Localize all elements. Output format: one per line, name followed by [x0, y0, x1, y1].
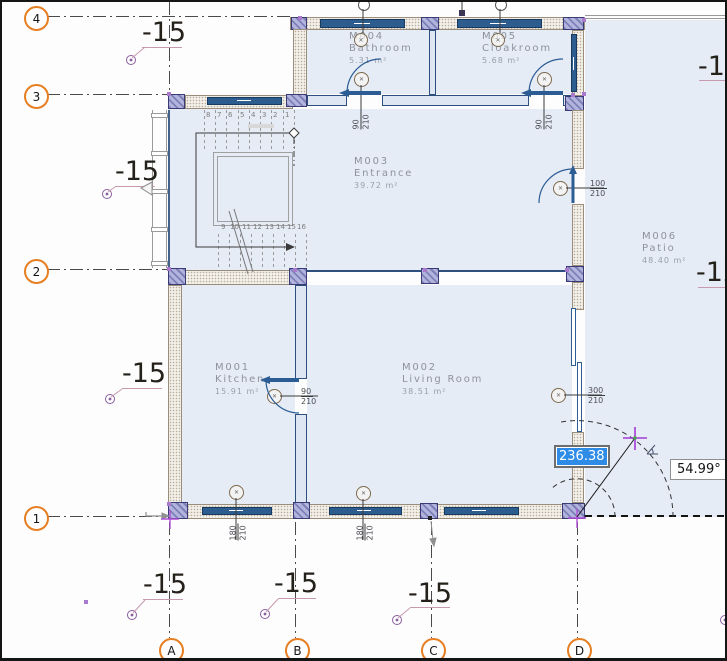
stair-number: 14	[276, 223, 285, 231]
column-b2	[289, 268, 307, 285]
room-area: 5.31 m²	[349, 55, 413, 67]
stair-number: 10	[230, 223, 239, 231]
slider-door-panel-1	[571, 308, 576, 366]
column-mid4	[421, 17, 439, 30]
wall-d-living-upper	[572, 282, 584, 310]
window-bottom-3	[444, 507, 519, 515]
slider-door-panel-2	[577, 362, 582, 432]
stair-tread	[273, 234, 274, 270]
window-entrance-north	[207, 97, 282, 105]
grip-handle	[84, 600, 88, 604]
window-d-cloak	[571, 34, 577, 92]
stair-number: 4	[251, 111, 255, 119]
room-area: 38.51 m²	[402, 386, 483, 398]
elevation-label[interactable]: -15	[115, 159, 159, 185]
stair-note	[248, 124, 274, 128]
grip-handle	[167, 92, 171, 96]
room-tag-bubble-cloakroom[interactable]	[495, 0, 507, 11]
elevation-label[interactable]: -15	[408, 581, 452, 607]
grip-handle	[167, 502, 171, 506]
stair-number: 7	[217, 111, 221, 119]
elevation-underline	[410, 607, 450, 608]
stair-tread	[295, 234, 296, 270]
stair-tread	[306, 234, 307, 270]
elevation-underline	[142, 47, 182, 48]
drawing-viewport[interactable]: 8 7 6 5 4 3 2 1 9 10 11 12 13 14 15 16 M…	[0, 0, 727, 661]
stair-number: 15	[287, 223, 296, 231]
annotation-window-1: 180210	[229, 513, 248, 541]
window-glass-line	[229, 510, 243, 511]
elevation-label[interactable]: -15	[143, 572, 187, 598]
room-id: M003	[354, 156, 413, 168]
window-glass-line	[237, 100, 251, 101]
gridline-row-1	[47, 516, 168, 517]
elevation-marker-icon	[260, 609, 270, 619]
stair-tread	[271, 110, 272, 150]
curtain-mullion	[151, 261, 168, 266]
room-tag-bubble-bathroom[interactable]	[358, 0, 370, 11]
grid-bubble-row-4[interactable]: 4	[24, 6, 49, 31]
dimension-input[interactable]: 236.38	[554, 445, 610, 468]
grid-bubble-row-2[interactable]: 2	[24, 259, 49, 284]
junction-marker	[428, 516, 432, 520]
elevation-underline	[115, 186, 155, 187]
elevation-marker-icon	[720, 615, 727, 625]
grip-handle	[582, 92, 586, 96]
elevation-marker-icon	[126, 55, 136, 65]
grip-handle	[167, 267, 171, 271]
room-label-kitchen[interactable]: M001 Kitchen 15.91 m²	[215, 362, 265, 398]
room-area: 48.40 m²	[642, 255, 686, 267]
window-glass-line	[354, 23, 370, 24]
stair-tread	[249, 110, 250, 150]
door-tag-icon-kitchen[interactable]: ✕	[267, 389, 282, 404]
annotation-kitchen-door: 90210	[301, 387, 316, 406]
dimension-input-value: 236.38	[557, 448, 607, 465]
grip-handle	[571, 93, 575, 97]
column-d4	[563, 17, 584, 30]
wall-row2-ab	[174, 270, 293, 285]
room-id: M002	[402, 362, 483, 374]
column-a1	[168, 502, 188, 519]
grid-bubble-col-c[interactable]: C	[421, 638, 446, 661]
elevation-label[interactable]: -15	[142, 20, 186, 46]
window-glass-line	[357, 510, 371, 511]
wall-d-entrance-upper	[572, 110, 584, 169]
stair-tread	[218, 234, 219, 270]
wall-kitchen-living-upper	[295, 285, 307, 379]
wall-d-entrance-lower	[572, 204, 584, 266]
room-name: Kitchen	[215, 374, 265, 386]
stair-tread	[294, 110, 295, 150]
room-area: 39.72 m²	[354, 180, 413, 192]
column-b1	[293, 502, 310, 519]
stair-tread	[215, 110, 216, 150]
elevation-marker-icon	[105, 394, 115, 404]
elevation-marker-icon	[392, 615, 402, 625]
room-area: 5.68 m²	[482, 55, 552, 67]
grip-handle	[423, 268, 427, 272]
stair-tread	[283, 110, 284, 150]
elevation-marker-icon	[102, 189, 112, 199]
annotation-patio-door: 100210	[590, 179, 607, 198]
stair-number: 13	[265, 223, 274, 231]
window-tag-icon-2[interactable]: ✕	[356, 486, 371, 501]
stair-number: 11	[242, 223, 251, 231]
wall-kitchen-living-lower	[295, 414, 307, 504]
patio-bottom-edge	[585, 515, 727, 517]
elevation-underline	[698, 287, 727, 288]
room-id: M001	[215, 362, 265, 374]
gridline-row-2	[47, 269, 170, 270]
elevation-marker-icon	[127, 610, 137, 620]
grip-handle	[565, 268, 569, 272]
stair-tread	[251, 234, 252, 270]
grip-handle	[582, 18, 586, 22]
stair-landing-inner	[217, 156, 289, 222]
stair-tread	[260, 110, 261, 150]
patio-top-edge2	[585, 18, 727, 19]
stair-number: 3	[262, 111, 266, 119]
stair-number: 12	[253, 223, 262, 231]
grid-bubble-col-a[interactable]: A	[159, 638, 184, 661]
gridline-col-d-bottom	[577, 522, 578, 638]
room-name: Entrance	[354, 168, 413, 180]
gridline-row-3	[47, 94, 168, 95]
room-name: Patio	[642, 243, 686, 255]
grid-bubble-col-b[interactable]: B	[285, 638, 310, 661]
room-label-entrance[interactable]: M003 Entrance 39.72 m²	[354, 156, 413, 192]
wall-left-edge	[168, 110, 170, 269]
stair-number: 1	[285, 111, 289, 119]
junction-marker	[459, 10, 465, 16]
wall-row3-seg1	[307, 95, 347, 106]
stair-number: 2	[273, 111, 277, 119]
door-tag-icon-cloakroom[interactable]: ✕	[537, 72, 552, 87]
elevation-label[interactable]: -13	[698, 54, 727, 80]
annotation-cloakroom-door: 90210	[535, 104, 554, 130]
grid-bubble-row-3[interactable]: 3	[24, 84, 49, 109]
wall-row3-seg2	[382, 95, 529, 106]
curtain-mullion	[151, 189, 168, 194]
elevation-label[interactable]: -15	[274, 571, 318, 597]
wall-left-lower	[168, 285, 182, 504]
window-glass-line	[490, 23, 506, 24]
stair-tread	[229, 234, 230, 270]
room-id: M006	[642, 231, 686, 243]
curtain-mullion	[151, 227, 168, 232]
column-b3	[286, 94, 307, 107]
patio-top-edge	[585, 15, 727, 16]
door-tag-icon-bathroom[interactable]: ✕	[354, 72, 369, 87]
elevation-underline	[143, 599, 183, 600]
wall-bath-cloak-divider	[429, 30, 436, 95]
room-tag-anchor-icon[interactable]: ✕	[354, 33, 368, 47]
grid-bubble-row-1[interactable]: 1	[24, 506, 49, 531]
window-tag-icon-1[interactable]: ✕	[229, 485, 244, 500]
door-tag-icon-living[interactable]: ✕	[551, 388, 566, 403]
stair-number: 16	[297, 223, 306, 231]
stair-tread	[226, 110, 227, 150]
elevation-label[interactable]: -12	[696, 260, 727, 286]
column-d1	[562, 503, 585, 519]
stair-number: 8	[206, 111, 210, 119]
stair-tread	[284, 234, 285, 270]
room-area: 15.91 m²	[215, 386, 265, 398]
room-name: Living Room	[402, 374, 483, 386]
stair-tread	[240, 234, 241, 270]
column-d3	[565, 96, 584, 111]
door-tag-icon-patio[interactable]: ✕	[553, 181, 568, 196]
window-glass-line	[472, 510, 486, 511]
room-label-patio[interactable]: M006 Patio 48.40 m²	[642, 231, 686, 267]
curtain-mullion	[151, 113, 168, 118]
room-label-living[interactable]: M002 Living Room 38.51 m²	[402, 362, 483, 398]
wall-bathroom-west	[293, 29, 307, 95]
stair-tread	[238, 110, 239, 150]
stair-tread	[262, 234, 263, 270]
stair-number: 9	[221, 223, 225, 231]
annotation-bathroom-door: 90210	[352, 104, 371, 130]
stair-tread	[204, 110, 205, 150]
elevation-label[interactable]: -15	[122, 361, 166, 387]
annotation-window-2: 180210	[356, 513, 375, 541]
column-a3	[168, 94, 185, 109]
annotation-living-door: 300210	[588, 386, 605, 405]
window-glass-line	[573, 57, 574, 70]
stair-number: 6	[228, 111, 232, 119]
grip-handle	[293, 268, 297, 272]
elevation-underline	[122, 388, 162, 389]
grid-bubble-col-d[interactable]: D	[567, 638, 592, 661]
elevation-underline	[699, 80, 727, 81]
stair-number: 5	[240, 111, 244, 119]
angle-readout: 54.99°	[670, 459, 727, 480]
room-tag-anchor-icon[interactable]: ✕	[491, 33, 505, 47]
grip-handle	[298, 16, 302, 20]
elevation-underline	[278, 598, 316, 599]
